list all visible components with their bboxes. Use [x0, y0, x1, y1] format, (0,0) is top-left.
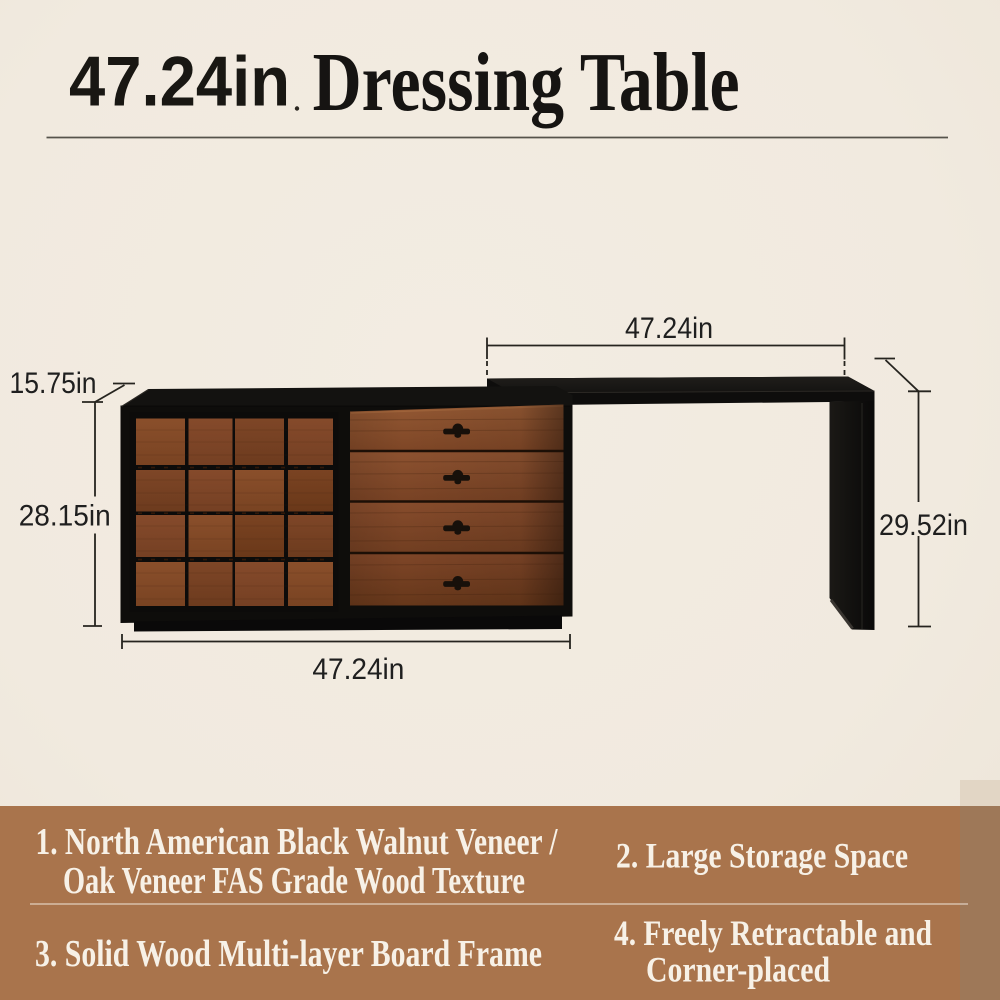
svg-text:2. Large Storage Space: 2. Large Storage Space — [616, 836, 908, 876]
svg-text:4. Freely Retractable and: 4. Freely Retractable and — [614, 913, 932, 953]
svg-text:15.75in: 15.75in — [10, 367, 97, 400]
svg-text:47.24in: 47.24in — [312, 653, 404, 686]
svg-text:Oak Veneer FAS Grade Wood Text: Oak Veneer FAS Grade Wood Texture — [63, 860, 525, 902]
svg-text:47.24in: 47.24in — [69, 42, 290, 121]
svg-text:Corner-placed: Corner-placed — [646, 950, 830, 990]
svg-text:29.52in: 29.52in — [879, 509, 968, 542]
svg-text:28.15in: 28.15in — [19, 500, 111, 533]
svg-text:Dressing Table: Dressing Table — [313, 36, 740, 129]
svg-text:3. Solid Wood Multi-layer Boar: 3. Solid Wood Multi-layer Board Frame — [35, 933, 542, 975]
svg-text:47.24in: 47.24in — [625, 312, 713, 345]
svg-text:1. North American Black Walnut: 1. North American Black Walnut Veneer / — [36, 821, 558, 863]
